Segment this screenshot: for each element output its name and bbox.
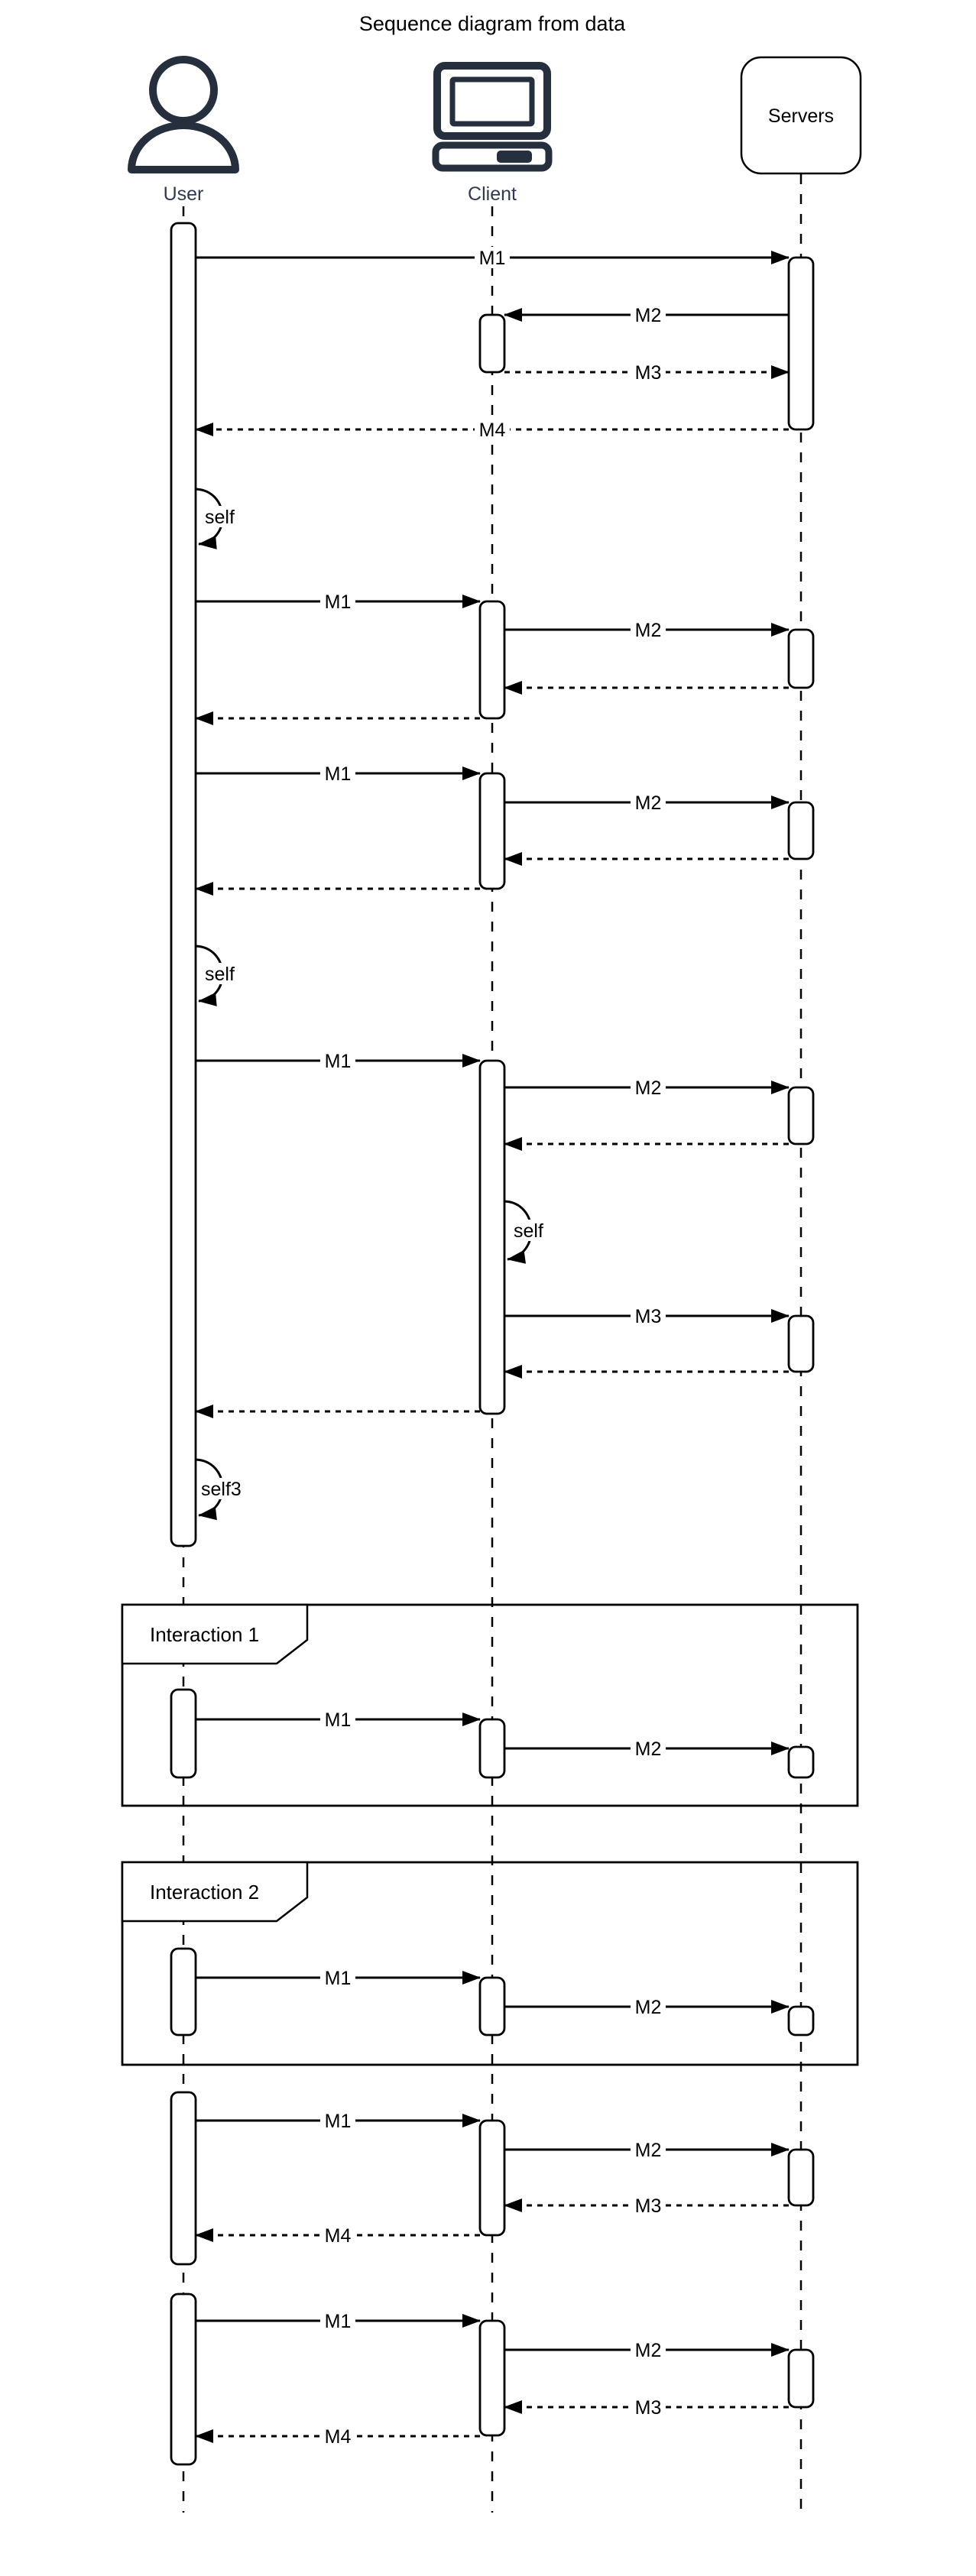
- actor-client: Client: [436, 66, 549, 205]
- person-icon: [131, 60, 235, 170]
- message-d-m1: M1: [196, 1050, 480, 1072]
- user-activation-e: [171, 2092, 196, 2264]
- self-loop-user-2: self: [196, 946, 242, 1001]
- message-label: M2: [635, 792, 662, 814]
- message-label: M3: [635, 362, 662, 384]
- servers-activation-frame1: [789, 1747, 813, 1777]
- self-label: self3: [201, 1479, 242, 1500]
- message-a-m3: M3: [504, 361, 789, 384]
- self-loop-client: self: [504, 1201, 551, 1259]
- actor-servers: Servers: [741, 57, 861, 173]
- message-e-m1: M1: [196, 2110, 480, 2132]
- message-b-m2: M2: [504, 619, 789, 641]
- sequence-diagram-canvas: Interaction 1 Interaction 2 self: [0, 0, 976, 2576]
- client-activation-b: [480, 601, 504, 718]
- servers-activation-b: [789, 630, 813, 688]
- message-label: M3: [635, 2397, 662, 2419]
- message-label: M1: [325, 1051, 352, 1072]
- message-label: M2: [635, 2340, 662, 2361]
- self-label: self: [205, 964, 235, 985]
- message-e-m2: M2: [504, 2139, 789, 2161]
- message-f-m2: M2: [504, 2339, 789, 2361]
- client-activation-a: [480, 315, 504, 372]
- computer-screen: [452, 79, 532, 124]
- message-e-m3: M3: [504, 2195, 789, 2217]
- message-label: M2: [635, 305, 662, 326]
- client-activation-d: [480, 1061, 504, 1414]
- message-b-m1: M1: [196, 591, 480, 613]
- message-label: M4: [479, 420, 506, 441]
- user-activation-f: [171, 2294, 196, 2464]
- user-activation-frame2: [171, 1949, 196, 2035]
- user-activation-frame1: [171, 1690, 196, 1777]
- computer-slot: [497, 151, 532, 163]
- message-f-m3: M3: [504, 2396, 789, 2419]
- message-a-m2: M2: [504, 304, 789, 326]
- self-label: self: [205, 507, 235, 528]
- message-d-m2: M2: [504, 1077, 789, 1099]
- message-label: M2: [635, 1738, 662, 1760]
- user-activation-main: [171, 223, 196, 1546]
- message-label: M4: [325, 2225, 352, 2247]
- message-label: M2: [635, 1997, 662, 2018]
- user-label: User: [164, 183, 204, 205]
- message-label: M1: [325, 763, 352, 785]
- client-activation-e: [480, 2121, 504, 2235]
- message-label: M1: [479, 248, 506, 269]
- message-label: M4: [325, 2426, 352, 2448]
- servers-label: Servers: [768, 105, 834, 127]
- message-e-m4: M4: [196, 2224, 480, 2247]
- servers-activation-d1: [789, 1087, 813, 1144]
- message-frame2-m2: M2: [504, 1996, 789, 2018]
- message-label: M2: [635, 620, 662, 641]
- servers-activation-f: [789, 2350, 813, 2407]
- person-head: [153, 60, 214, 121]
- message-frame2-m1: M1: [196, 1967, 480, 1989]
- message-f-m4: M4: [196, 2425, 480, 2448]
- message-label: M1: [325, 2311, 352, 2332]
- servers-activation-a: [789, 258, 813, 429]
- message-label: M1: [325, 1709, 352, 1731]
- message-frame1-m2: M2: [504, 1738, 789, 1760]
- sequence-diagram-page: Interaction 1 Interaction 2 self: [0, 0, 976, 2576]
- client-activation-f: [480, 2321, 504, 2435]
- self-loop-user-3: self3: [196, 1460, 250, 1515]
- servers-activation-d2: [789, 1316, 813, 1372]
- message-c-m2: M2: [504, 792, 789, 814]
- client-activation-c: [480, 773, 504, 889]
- servers-activation-c: [789, 802, 813, 859]
- frame-1-title: Interaction 1: [150, 1623, 259, 1646]
- diagram-title: Sequence diagram from data: [359, 12, 626, 35]
- activation-bars: [171, 223, 813, 2464]
- message-a-m4: M4: [196, 419, 789, 441]
- message-label: M3: [635, 2195, 662, 2217]
- message-d-m3: M3: [504, 1305, 789, 1327]
- message-label: M1: [325, 1968, 352, 1989]
- client-label: Client: [468, 183, 517, 205]
- frame-2-title: Interaction 2: [150, 1881, 259, 1904]
- actor-user: User: [131, 60, 235, 205]
- message-label: M2: [635, 1077, 662, 1099]
- message-f-m1: M1: [196, 2310, 480, 2332]
- message-label: M1: [325, 2111, 352, 2132]
- computer-icon: [436, 66, 549, 168]
- message-frame1-m1: M1: [196, 1709, 480, 1731]
- self-label: self: [514, 1220, 543, 1242]
- self-loop-user-1: self: [196, 489, 242, 544]
- message-label: M3: [635, 1306, 662, 1327]
- message-label: M1: [325, 591, 352, 613]
- person-body: [131, 125, 235, 170]
- message-a-m1: M1: [196, 247, 789, 269]
- message-label: M2: [635, 2140, 662, 2161]
- servers-activation-frame2: [789, 2007, 813, 2035]
- client-activation-frame2: [480, 1978, 504, 2035]
- message-c-m1: M1: [196, 763, 480, 785]
- client-activation-frame1: [480, 1719, 504, 1777]
- servers-activation-e: [789, 2150, 813, 2205]
